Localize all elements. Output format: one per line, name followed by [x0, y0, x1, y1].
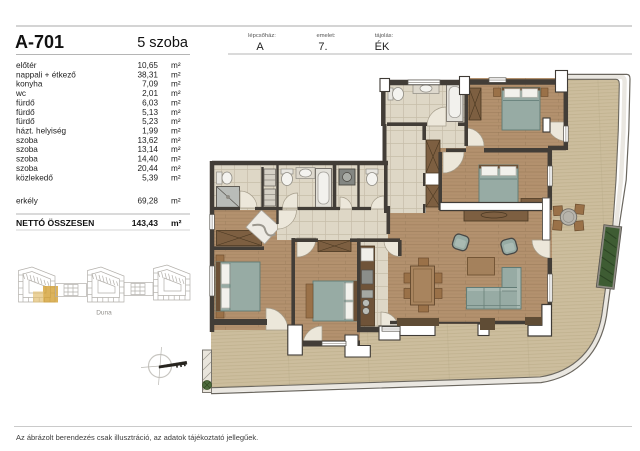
svg-text:A: A: [256, 41, 264, 53]
svg-text:m²: m²: [171, 136, 181, 145]
svg-text:szoba: szoba: [16, 145, 38, 154]
svg-text:1,99: 1,99: [142, 127, 158, 136]
svg-text:fürdő: fürdő: [16, 108, 35, 117]
svg-text:m²: m²: [171, 61, 181, 70]
svg-text:m²: m²: [171, 127, 181, 136]
svg-text:emelet:: emelet:: [316, 33, 335, 39]
svg-text:14,40: 14,40: [138, 155, 159, 164]
svg-text:m²: m²: [171, 98, 181, 107]
svg-text:wc: wc: [15, 89, 26, 98]
svg-text:20,44: 20,44: [138, 164, 159, 173]
svg-text:szoba: szoba: [16, 164, 38, 173]
svg-text:NETTÓ ÖSSZESEN: NETTÓ ÖSSZESEN: [16, 217, 94, 228]
svg-text:38,31: 38,31: [138, 70, 159, 79]
svg-text:m²: m²: [171, 80, 181, 89]
svg-text:m²: m²: [171, 164, 181, 173]
svg-text:7,09: 7,09: [142, 80, 158, 89]
svg-text:szoba: szoba: [16, 155, 38, 164]
svg-text:lépcsőház:: lépcsőház:: [248, 33, 276, 39]
svg-text:m²: m²: [171, 117, 181, 126]
svg-text:m²: m²: [171, 155, 181, 164]
svg-text:13,62: 13,62: [138, 136, 159, 145]
svg-text:fürdő: fürdő: [16, 117, 35, 126]
svg-text:házt. helyiség: házt. helyiség: [16, 127, 67, 136]
svg-text:erkély: erkély: [16, 197, 39, 206]
svg-text:5,13: 5,13: [142, 108, 158, 117]
svg-text:7.: 7.: [318, 41, 327, 53]
svg-text:m²: m²: [171, 218, 182, 228]
svg-text:13,14: 13,14: [138, 145, 159, 154]
svg-text:tájolás:: tájolás:: [375, 33, 394, 39]
svg-text:m²: m²: [171, 108, 181, 117]
svg-text:A-701: A-701: [15, 32, 64, 52]
svg-text:10,65: 10,65: [138, 61, 159, 70]
svg-text:fürdő: fürdő: [16, 98, 35, 107]
svg-text:előtér: előtér: [16, 61, 37, 70]
svg-text:5,39: 5,39: [142, 173, 158, 182]
svg-text:143,43: 143,43: [132, 218, 159, 228]
svg-text:5 szoba: 5 szoba: [137, 35, 189, 51]
svg-text:2,01: 2,01: [142, 89, 158, 98]
svg-text:szoba: szoba: [16, 136, 38, 145]
svg-text:Az ábrázolt berendezés csak il: Az ábrázolt berendezés csak illusztráció…: [16, 433, 258, 442]
svg-text:m²: m²: [171, 173, 181, 182]
svg-text:Duna: Duna: [96, 310, 112, 317]
svg-text:m²: m²: [171, 145, 181, 154]
svg-text:5,23: 5,23: [142, 117, 158, 126]
svg-text:nappali + étkező: nappali + étkező: [16, 70, 76, 79]
svg-text:69,28: 69,28: [138, 197, 159, 206]
svg-text:m²: m²: [171, 197, 181, 206]
svg-text:konyha: konyha: [16, 80, 43, 89]
svg-text:ÉK: ÉK: [375, 40, 390, 53]
svg-text:közlekedő: közlekedő: [16, 173, 53, 182]
svg-text:6,03: 6,03: [142, 98, 158, 107]
svg-text:m²: m²: [171, 89, 181, 98]
svg-text:m²: m²: [171, 70, 181, 79]
